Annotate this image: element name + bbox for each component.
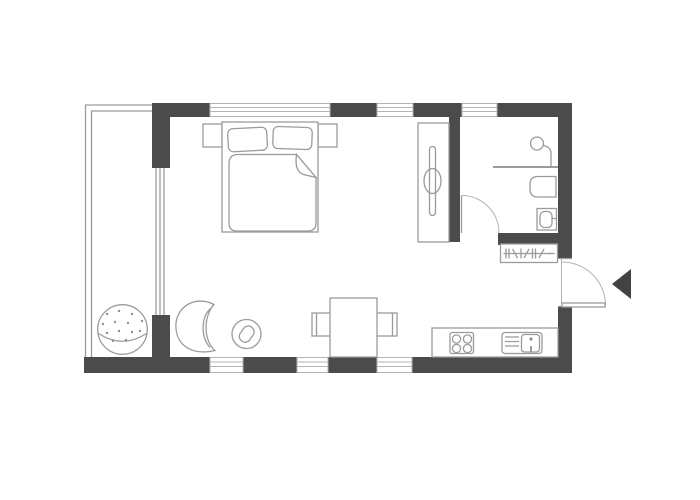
top-window-middle: [377, 104, 413, 117]
floorplan-page: [0, 0, 700, 500]
shower-head: [531, 137, 552, 167]
balcony: [86, 105, 153, 357]
ball-chair: [98, 305, 148, 355]
dining-table: [330, 298, 377, 357]
dining-area: [312, 298, 397, 357]
bathroom-door: [462, 196, 500, 234]
bottom-window-right: [377, 358, 412, 373]
entrance-arrow-icon: [612, 269, 631, 299]
lounge-area: [176, 301, 261, 352]
wall-bottom-a: [84, 357, 210, 373]
wall-bottom-b: [243, 357, 297, 373]
egg-chair: [176, 301, 215, 352]
pillow-right: [273, 126, 313, 149]
wall-top-b: [330, 103, 377, 117]
door-jambs: [558, 259, 572, 307]
toilet: [530, 177, 556, 198]
nightstand-right: [318, 124, 337, 147]
wall-top-c: [413, 103, 462, 117]
top-window-right: [462, 104, 497, 117]
entrance-door-leaf: [562, 303, 605, 307]
wall-bottom-c: [328, 357, 377, 373]
wall-bathroom-bottom: [498, 233, 558, 245]
kitchen: [432, 328, 558, 357]
wall-bottom-d: [412, 357, 572, 373]
wardrobe: [418, 123, 449, 242]
door-swing-arc: [562, 262, 606, 306]
wall-bathroom-left: [449, 117, 460, 242]
balcony-glazing: [156, 168, 164, 315]
wall-right-upper: [558, 103, 572, 258]
radiator: [501, 244, 558, 263]
round-side-table: [232, 320, 261, 349]
bottom-window-center: [297, 358, 328, 373]
wall-balcony-upper: [152, 103, 170, 168]
top-window-large: [210, 104, 330, 117]
bathroom: [462, 137, 559, 263]
pillow-left: [227, 127, 267, 152]
sleeping-area: [203, 122, 337, 232]
bottom-window-left: [210, 358, 243, 373]
floorplan-drawing: [0, 0, 700, 500]
entrance: [558, 259, 631, 308]
washbasin: [537, 209, 557, 231]
wall-balcony-lower: [152, 315, 170, 357]
dining-chair-right: [375, 313, 397, 336]
nightstand-left: [203, 124, 222, 147]
